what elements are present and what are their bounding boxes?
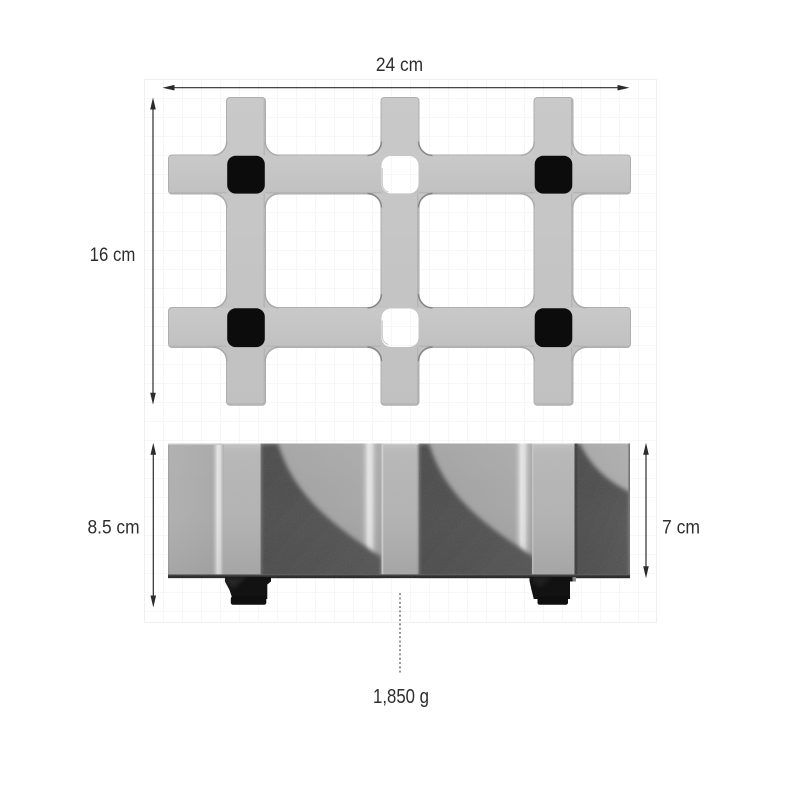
svg-text:16 cm: 16 cm [90,244,136,265]
svg-text:8.5 cm: 8.5 cm [87,515,139,537]
svg-text:24 cm: 24 cm [376,53,423,75]
svg-text:1,850 g: 1,850 g [373,685,429,708]
svg-text:7 cm: 7 cm [662,516,700,538]
